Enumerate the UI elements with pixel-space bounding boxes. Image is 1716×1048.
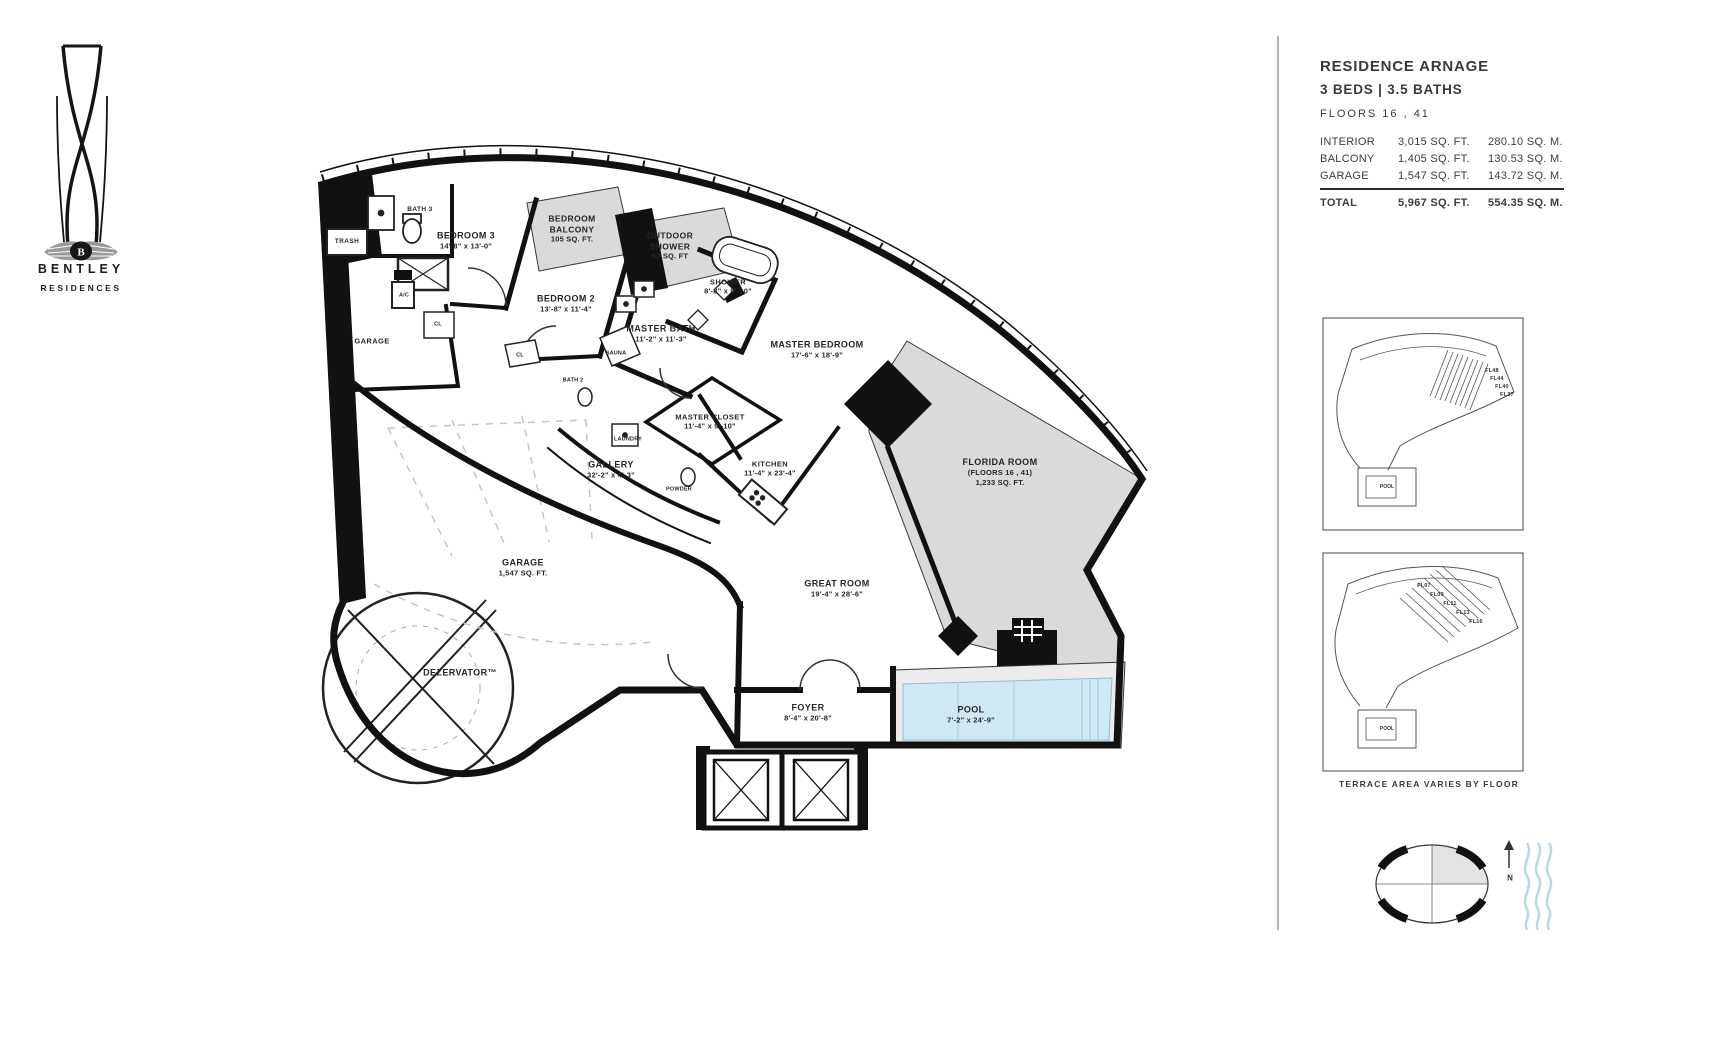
bentley-wings-icon: B [44,241,118,260]
room-label-garage-upper: GARAGE [354,336,389,345]
room-label-master-bedroom: MASTER BEDROOM 17'-6" x 18'-9" [770,340,863,361]
inset-floor-label: FL37 [1500,392,1514,398]
room-label-foyer: FOYER 8'-4" x 20'-8" [784,703,832,724]
room-label-shower: SHOWER 8'-8" x 9'-10" [704,278,752,297]
room-label-florida-room: FLORIDA ROOM (FLOORS 16 , 41) 1,233 SQ. … [963,457,1038,487]
inset-floor-label: FL11 [1443,601,1456,607]
inset-pool-label: POOL [1380,484,1394,490]
room-label-powder: POWDER [666,487,692,494]
spa-grid-icon [1012,618,1044,644]
inset-floor-label: FL13 [1456,610,1470,616]
inset-floor-label: FL07 [1417,583,1431,589]
floors-note: FLOORS 16 , 41 [1320,108,1430,120]
room-label-gallery: GALLERY 32'-2" x 4'-3" [587,460,635,481]
water-waves-icon [1525,843,1551,930]
room-label-closet-1: CL [434,322,442,329]
room-label-master-closet: MASTER CLOSET 11'-4" x 9'-10" [675,413,744,432]
inset-floor-label: FL44 [1490,376,1504,382]
beds-baths: 3 BEDS | 3.5 BATHS [1320,82,1462,97]
page: B BENTLEY RESIDENCES RESIDENCE ARNAGE 3 … [0,0,1716,1048]
pool-water [903,678,1112,740]
brand-subtitle: RESIDENCES [40,283,121,293]
room-label-laundry: LAUNDRY [614,437,642,444]
bentley-b-letter: B [77,247,85,259]
north-arrow-icon [1504,840,1514,868]
elevator-bank [704,752,860,828]
inset-floor-label: FL09 [1430,592,1444,598]
room-label-trash: TRASH [335,238,359,246]
compass [1376,845,1488,923]
table-total-row: TOTAL 5,967 SQ. FT. 554.35 SQ. M. [1320,188,1564,211]
dezervator-lift [323,593,513,783]
brand-name: BENTLEY [38,262,124,276]
terrace-footnote: TERRACE AREA VARIES BY FLOOR [1339,779,1519,789]
room-label-garage-main: GARAGE 1,547 SQ. FT. [499,558,548,579]
room-label-bath-3: BATH 3 [407,206,432,214]
room-label-kitchen: KITCHEN 11'-4" x 23'-4" [744,460,796,479]
inset-floor-label: FL40 [1495,384,1509,390]
room-label-ac: A/C [399,293,409,300]
inset-floor-label: FL16 [1469,619,1483,625]
room-label-bedroom-3: BEDROOM 3 14'-8" x 13'-0" [437,231,495,252]
room-label-closet-2: CL [516,353,524,360]
room-label-pool: POOL 7'-2" x 24'-9" [947,705,995,726]
inset-floor-label: FL48 [1485,368,1499,374]
table-row: GARAGE 1,547 SQ. FT. 143.72 SQ. M. [1320,167,1564,184]
room-label-bedroom-2: BEDROOM 2 13'-8" x 11'-4" [537,294,595,315]
table-row: INTERIOR 3,015 SQ. FT. 280.10 SQ. M. [1320,133,1564,150]
room-label-sauna: SAUNA [606,351,627,358]
room-label-outdoor-shower: OUTDOOR SHOWER 67 SQ. FT [632,231,708,262]
residence-title: RESIDENCE ARNAGE [1320,58,1489,75]
room-label-bath-2: BATH 2 [563,378,584,385]
north-label: N [1507,874,1513,883]
inset-terrace-top [1323,318,1523,530]
room-label-master-bath: MASTER BATH 11'-2" x 11'-3" [626,324,695,345]
room-label-dezervator: DEZERVATOR™ [423,667,497,678]
kitchen-island [739,480,787,525]
inset-pool-label: POOL [1380,726,1394,732]
area-table: INTERIOR 3,015 SQ. FT. 280.10 SQ. M. BAL… [1320,133,1564,211]
table-row: BALCONY 1,405 SQ. FT. 130.53 SQ. M. [1320,150,1564,167]
room-label-bedroom-balcony: BEDROOM BALCONY 105 SQ. FT. [534,214,610,245]
bentley-tower-logo [57,46,107,246]
room-label-great-room: GREAT ROOM 19'-4" x 28'-6" [804,579,869,600]
